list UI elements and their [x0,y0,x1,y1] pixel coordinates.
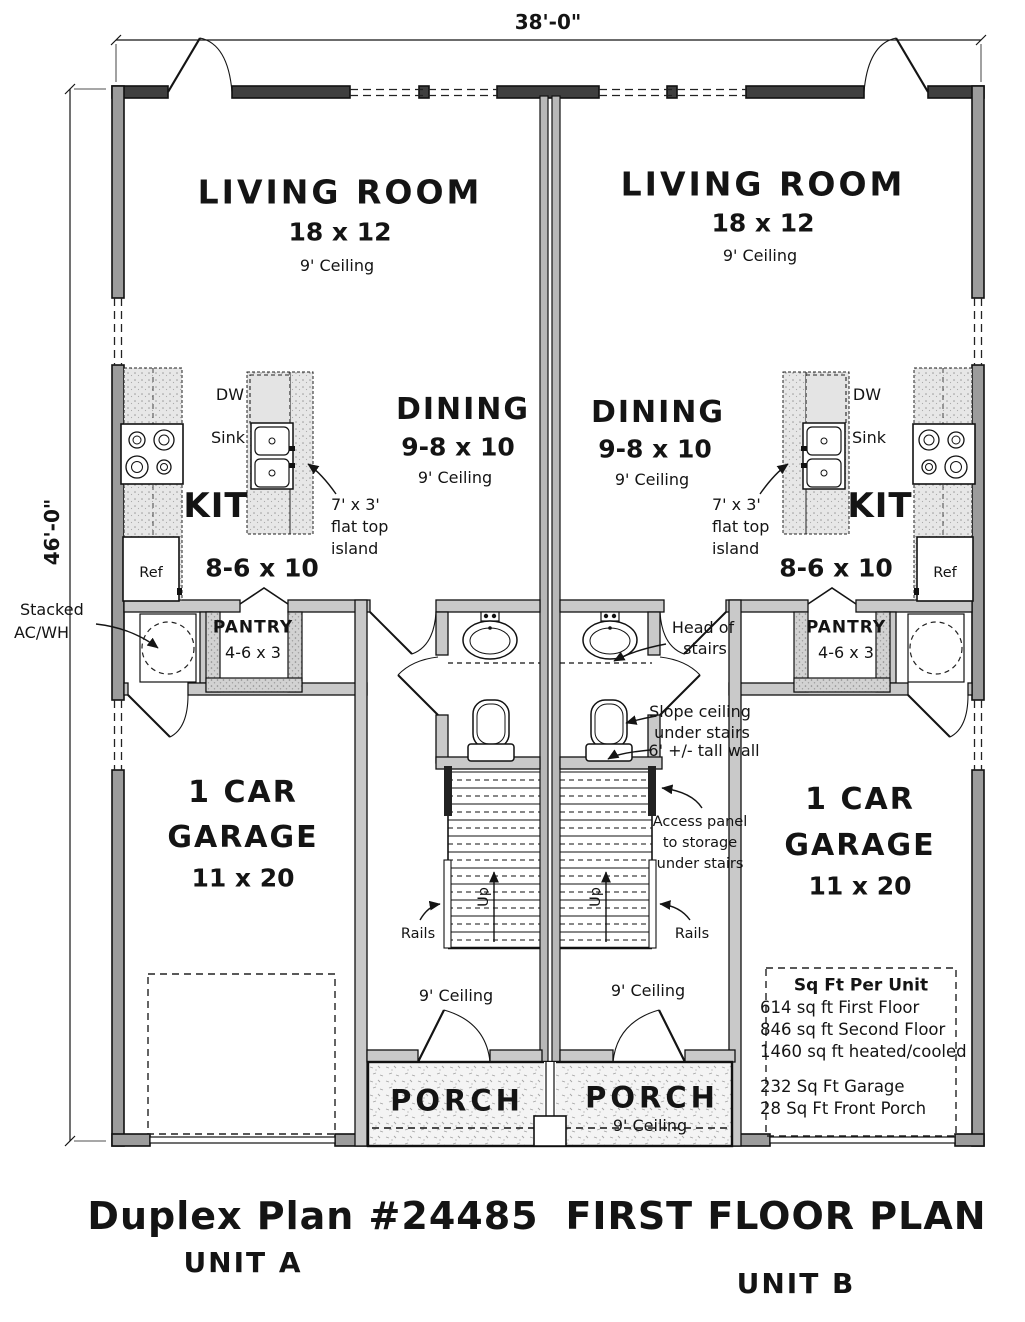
stair-rail [649,860,656,948]
toilet-icon [586,700,632,761]
stove-icon [121,424,183,484]
living-room-size-b: 18 x 12 [711,211,814,236]
tall-wall-label: 6' +/- tall wall [648,743,759,759]
sqft-title: Sq Ft Per Unit [794,978,928,995]
head-of-stairs-label-2: stairs [683,641,727,657]
front-door-a [168,38,232,92]
overhead-garage-door-b [770,1137,955,1143]
garage-label-b-2: GARAGE [784,831,935,861]
bath-door-a [398,657,438,715]
access-panel-label-2: to storage [663,836,737,851]
floor-plan-sheet: 38'-0" 46'-0" LIVING ROOM 18 x 12 9' Cei… [0,0,1025,1322]
stairs-b [560,766,656,948]
dishwasher [250,375,290,423]
ref-label-a: Ref [139,566,162,581]
toilet-icon [468,700,514,761]
stove-icon [913,424,975,484]
garage-door-a [128,695,188,737]
island-note-b-1: 7' x 3' [712,497,761,513]
unit-b-label: UNIT B [737,1270,856,1298]
bathroom-sink-icon [463,612,517,659]
kitchen-label-b: KIT [847,489,912,523]
dimension-height: 46'-0" [42,499,62,566]
porch-door-a [418,1010,490,1062]
ac-unit-b [908,614,964,682]
hall-ceiling-a: 9' Ceiling [419,988,493,1004]
sqft-line-3: 1460 sq ft heated/cooled [760,1044,967,1061]
pantry-label-b: PANTRY [806,620,886,637]
stacked-ac-label-2: AC/WH [14,625,69,641]
porch-ceiling-b: 9' Ceiling [613,1118,687,1134]
rails-label-b: Rails [675,927,709,942]
kitchen-size-a: 8-6 x 10 [205,556,319,581]
plan-title: Duplex Plan #24485 [87,1197,538,1235]
dimension-width: 38'-0" [515,12,582,32]
garage-label-a-2: GARAGE [167,823,318,853]
hall-ceiling-b: 9' Ceiling [611,983,685,999]
garage-size-b: 11 x 20 [808,874,911,899]
hall-door-a [370,612,436,654]
sink-label-b: Sink [852,430,886,446]
living-room-label-a: LIVING ROOM [198,176,483,209]
storage-access-panel [648,766,656,816]
sqft-line-1: 614 sq ft First Floor [760,1000,919,1017]
bathroom-sink-icon [583,612,637,659]
kitchen-island [783,372,849,534]
rails-label-a: Rails [401,927,435,942]
stacked-ac-label-1: Stacked [20,602,84,618]
garage-size-a: 11 x 20 [191,866,294,891]
party-wall [540,96,560,1062]
access-panel-label-3: under stairs [657,857,744,872]
sink-label-a: Sink [211,430,245,446]
sink-icon [251,423,295,489]
storage-access-panel [444,766,452,816]
garage-ceiling-outline-a [148,974,335,1134]
rails-arrow-a [420,904,440,920]
living-room-ceiling-b: 9' Ceiling [723,248,797,264]
slope-ceiling-label-1: Slope ceiling [649,704,751,720]
island-note-b-2: flat top [712,519,769,535]
pantry-label-a: PANTRY [213,620,293,637]
overhead-garage-door-a [150,1137,335,1143]
dining-label-b: DINING [591,398,725,428]
ac-unit-a [140,614,196,682]
sink-icon [801,423,845,489]
dining-size-a: 9-8 x 10 [401,435,515,460]
front-door-b [864,38,928,92]
island-note-b-3: island [712,541,759,557]
up-label-a: Up [477,887,492,907]
dw-label-b: DW [853,387,881,403]
pantry-size-b: 4-6 x 3 [818,645,874,661]
kitchen-island [247,372,313,534]
up-label-b: Up [589,887,604,907]
dining-size-b: 9-8 x 10 [598,437,712,462]
rails-arrow-b [660,904,690,920]
head-of-stairs-label-1: Head of [672,620,734,636]
island-note-a-3: island [331,541,378,557]
living-room-label-b: LIVING ROOM [621,168,906,201]
porch-label-b: PORCH [585,1084,719,1113]
sqft-line-4: 232 Sq Ft Garage [760,1079,905,1096]
island-note-a-2: flat top [331,519,388,535]
drawing-title: FIRST FLOOR PLAN [565,1197,986,1235]
kitchen-label-a: KIT [183,489,248,523]
dining-label-a: DINING [396,395,530,425]
pantry-size-a: 4-6 x 3 [225,645,281,661]
garage-door-b [908,695,968,737]
living-room-ceiling-a: 9' Ceiling [300,258,374,274]
porch-post [534,1116,566,1146]
sqft-line-5: 28 Sq Ft Front Porch [760,1101,926,1118]
living-room-size-a: 18 x 12 [288,220,391,245]
garage-label-a-1: 1 CAR [188,778,298,808]
porch-door-b [613,1010,685,1062]
stairs-a [444,766,540,948]
dining-ceiling-a: 9' Ceiling [418,470,492,486]
garage-label-b-1: 1 CAR [805,785,915,815]
access-panel-label-1: Access panel [653,815,747,830]
access-panel-arrow [662,788,702,808]
sqft-line-2: 846 sq ft Second Floor [760,1022,945,1039]
porch-label-a: PORCH [390,1087,524,1116]
kitchen-size-b: 8-6 x 10 [779,556,893,581]
dishwasher [806,375,846,423]
bath-b [560,612,652,761]
dw-label-a: DW [216,387,244,403]
island-note-a-1: 7' x 3' [331,497,380,513]
unit-a-label: UNIT A [183,1249,302,1277]
bath-a [448,612,540,761]
dining-ceiling-b: 9' Ceiling [615,472,689,488]
stair-rail [444,860,451,948]
ref-label-b: Ref [933,566,956,581]
slope-ceiling-label-2: under stairs [654,725,750,741]
